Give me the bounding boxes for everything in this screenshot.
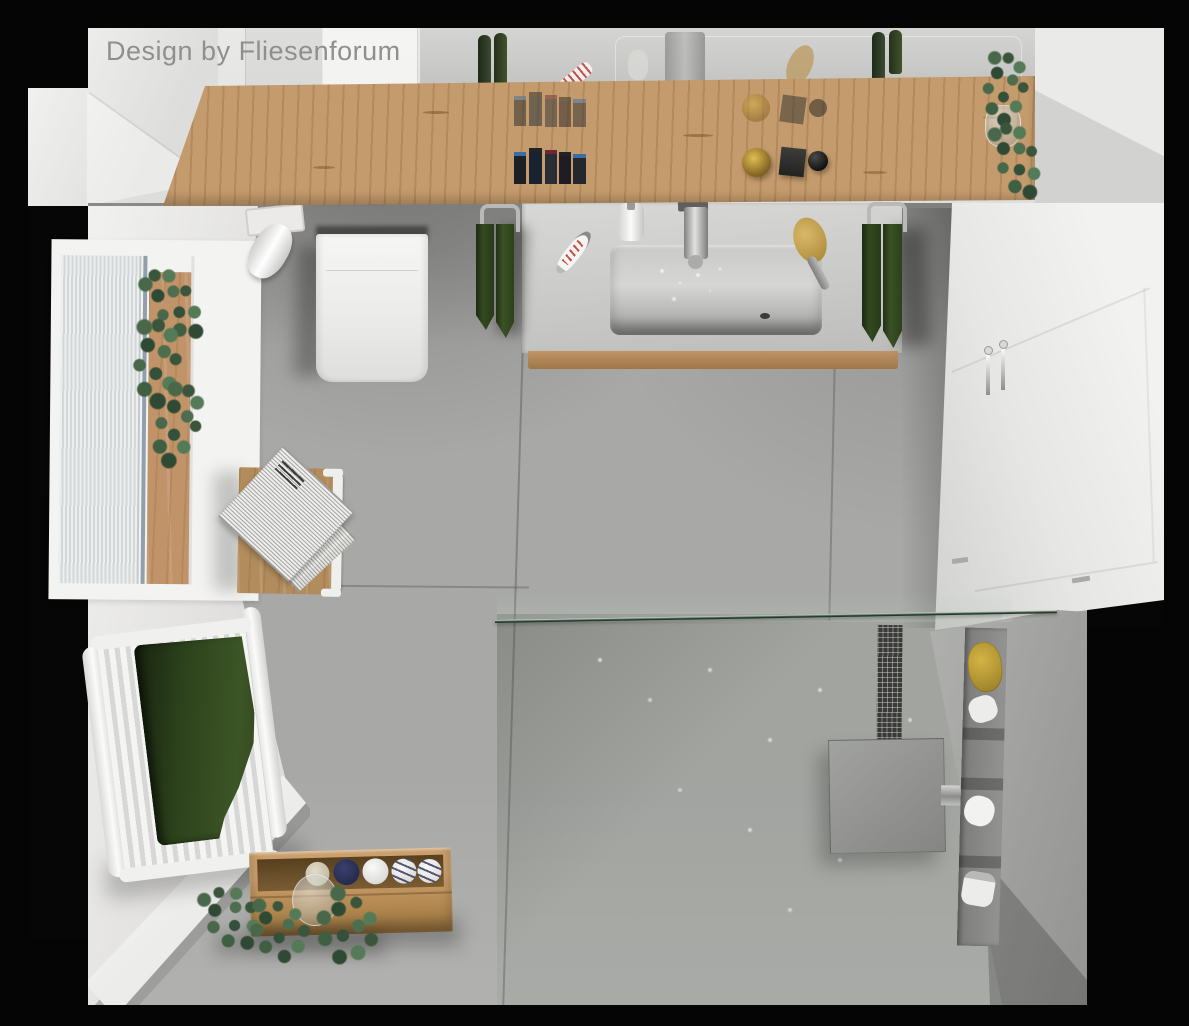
- green-candle-pair: [872, 30, 904, 82]
- rolled-towel-striped: [417, 859, 442, 884]
- shampoo-bottle: [960, 870, 997, 909]
- shampoo-bottle: [966, 692, 1001, 726]
- shower-niche: [957, 628, 1007, 947]
- watermark: Design by Fliesenforum: [106, 36, 401, 67]
- cabinet-handle-knob: [999, 340, 1008, 349]
- towel-rail-right: [860, 202, 906, 354]
- faucet: [684, 207, 708, 259]
- round-jar-reflection: [809, 99, 827, 117]
- table-frame: [323, 469, 343, 477]
- toilet: [314, 226, 430, 384]
- rendered-scene: Design by Fliesenforum: [0, 0, 1189, 1026]
- mosaic-strip: [876, 625, 902, 743]
- radiator: [78, 600, 294, 892]
- vanity-wood-base: [528, 351, 898, 369]
- yellow-sponge: [965, 640, 1004, 694]
- rolled-towel-navy: [333, 859, 360, 886]
- rolled-towel-white: [362, 858, 389, 885]
- cabinet-handle-knob: [984, 346, 993, 355]
- shampoo-bottle: [961, 792, 998, 829]
- frame-top: [0, 0, 1189, 28]
- wooden-shelf: [163, 76, 1035, 206]
- frame-right-lower: [1087, 627, 1189, 1026]
- black-box: [779, 147, 807, 177]
- towel-rail-left: [474, 204, 518, 344]
- soap-reflection: [628, 50, 648, 80]
- round-black-jar: [808, 151, 828, 171]
- toilet-paper-holder: [246, 206, 306, 286]
- frame-bottomleft: [0, 940, 88, 1026]
- vanity: [522, 203, 902, 371]
- rolled-towel-striped: [391, 858, 417, 884]
- window-blinds: [59, 255, 142, 584]
- green-towel: [496, 224, 514, 338]
- basin-drain: [760, 313, 770, 319]
- rain-shower-head: [828, 738, 946, 854]
- green-towel: [883, 224, 902, 348]
- cosmetics-reflection: [514, 90, 594, 134]
- black-box-reflection: [779, 94, 807, 124]
- frame-notch-topleft: [28, 28, 88, 88]
- watermark-text: Design by Fliesenforum: [106, 36, 401, 66]
- crate-interior: [257, 855, 444, 892]
- frame-bottom: [0, 1005, 1189, 1026]
- table-frame: [321, 589, 341, 597]
- right-wall-top: [1035, 28, 1164, 206]
- green-towel: [862, 224, 881, 342]
- gold-jar: [742, 148, 771, 177]
- soap-dispenser: [618, 203, 644, 241]
- toilet-body: [316, 234, 428, 382]
- green-candle-pair: [478, 33, 508, 85]
- wall-panel-seam: [417, 28, 418, 92]
- water-splash: [650, 261, 736, 309]
- cabinet-handle: [1001, 346, 1005, 390]
- cosmetics-bottles: [514, 144, 594, 188]
- cabinet-handle: [986, 353, 990, 395]
- faucet-reflection: [665, 32, 705, 86]
- gold-jar-reflection: [742, 94, 770, 122]
- green-towel: [476, 224, 494, 330]
- frame-left: [0, 0, 28, 1026]
- frame-right-upper: [1164, 28, 1189, 627]
